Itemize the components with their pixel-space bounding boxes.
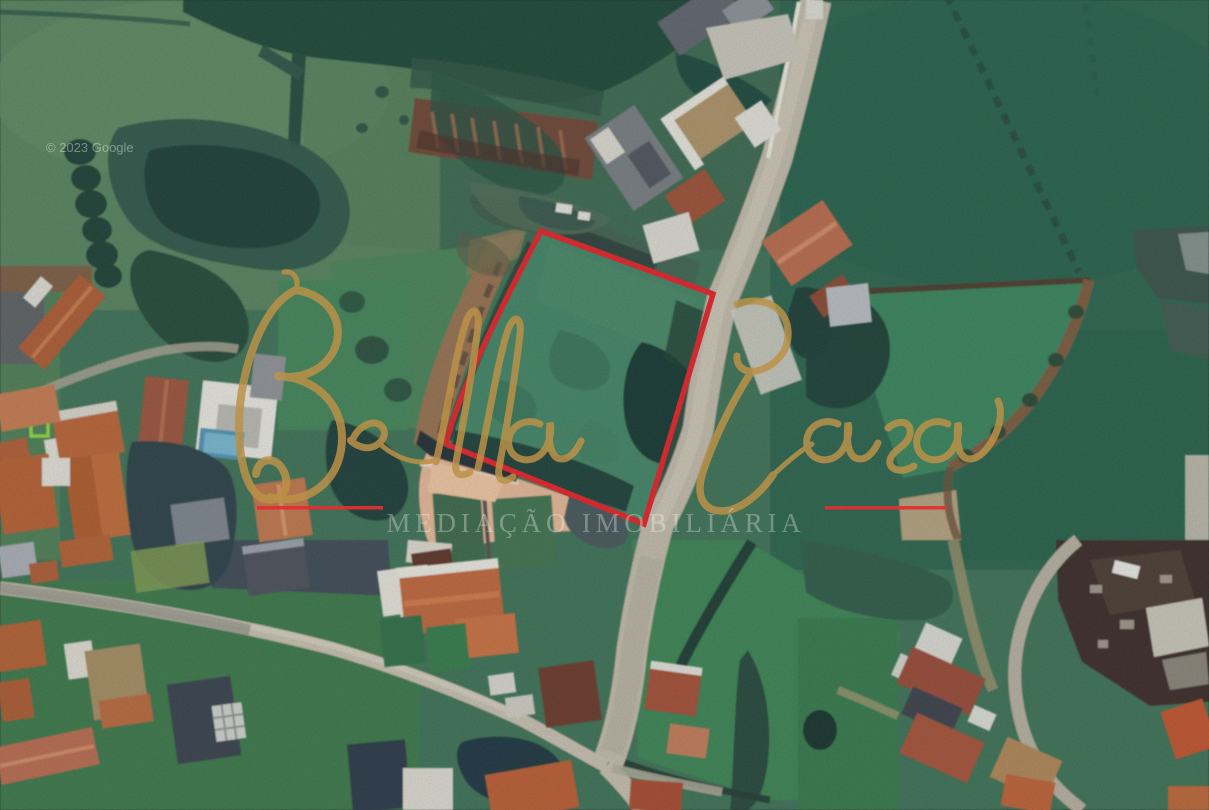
svg-text:© 2023 Google: © 2023 Google	[46, 140, 134, 155]
svg-text:MEDIAÇÃO IMOBILIÁRIA: MEDIAÇÃO IMOBILIÁRIA	[386, 508, 805, 538]
